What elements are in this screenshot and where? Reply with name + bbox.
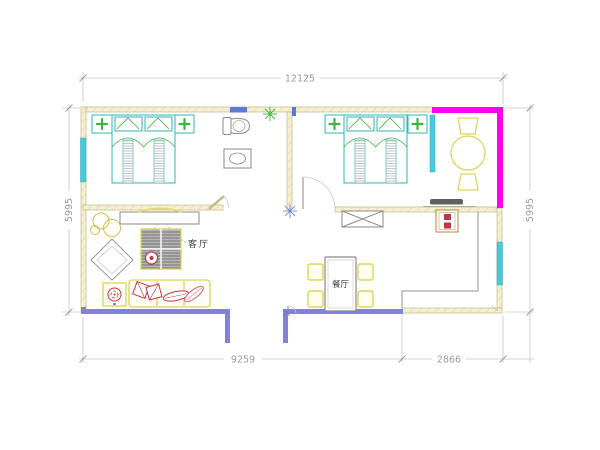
toilet-icon[interactable] — [223, 118, 250, 135]
ceiling-light-icon — [263, 107, 277, 121]
stool — [458, 174, 478, 190]
plant-icon — [91, 213, 121, 237]
bed-1[interactable] — [112, 115, 175, 183]
dining-chair — [308, 291, 323, 307]
side-table[interactable] — [103, 283, 126, 306]
rug[interactable] — [141, 229, 181, 269]
floor-plan-page: 12125 5995 5995 9259 2866 — [0, 0, 600, 450]
door-bedroom2[interactable] — [303, 177, 335, 209]
exterior-wall-bottom[interactable] — [81, 307, 403, 343]
window-right-wall — [497, 242, 503, 285]
wall-top — [83, 107, 434, 112]
tv-shelf[interactable] — [423, 199, 476, 207]
dining-chair — [308, 264, 323, 280]
window-balcony-partition — [430, 115, 435, 172]
window-left-wall — [81, 138, 87, 182]
dim-label-right-height: 5995 — [525, 198, 536, 222]
wall-junction-markers — [283, 204, 297, 316]
wall-center — [287, 112, 292, 209]
floor-plan-drawing: 12125 5995 5995 9259 2866 — [0, 0, 600, 450]
dim-label-left-height: 5995 — [64, 198, 75, 222]
armchair[interactable] — [91, 239, 133, 280]
dim-label-total-width: 12125 — [285, 74, 315, 85]
wall-bottom-right — [402, 308, 502, 313]
stove-cabinet[interactable] — [436, 210, 458, 232]
crossed-bench[interactable] — [342, 211, 383, 227]
dining-chair — [358, 291, 373, 307]
dining-room-label: 餐厅 — [332, 280, 350, 290]
bed-2[interactable] — [344, 115, 407, 183]
dining-table[interactable]: 餐厅 — [325, 257, 356, 311]
living-room-label: 客厅 — [188, 238, 210, 250]
dining-chair — [358, 264, 373, 280]
washbasin-icon[interactable] — [224, 149, 251, 168]
dim-label-bottom-right-width: 2866 — [437, 355, 461, 366]
dim-label-bottom-left-width: 9259 — [231, 355, 255, 366]
round-table[interactable] — [451, 118, 485, 190]
stool — [458, 118, 478, 134]
